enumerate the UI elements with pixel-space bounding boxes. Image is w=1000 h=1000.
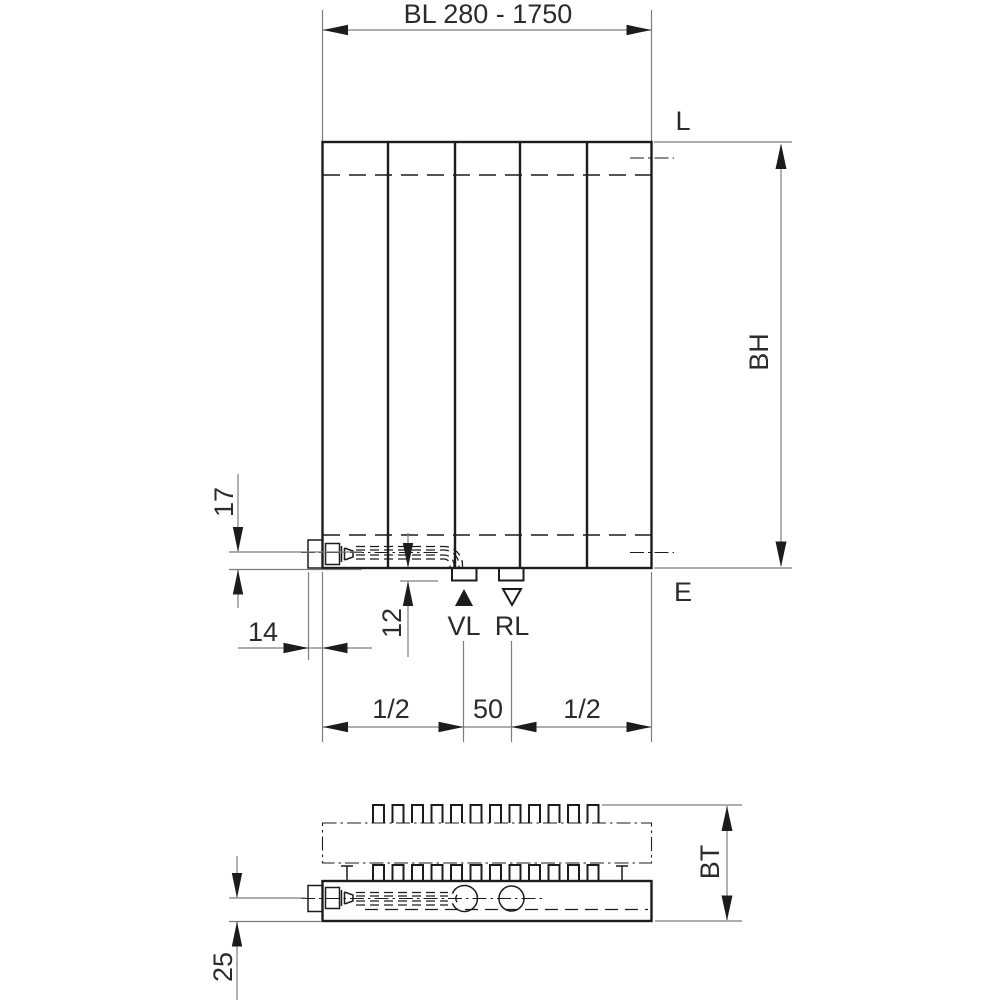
rear-panel-phantom <box>323 823 652 863</box>
fin-tee-mark <box>341 866 353 881</box>
dim-build-height-label: BH <box>744 333 774 371</box>
arrowhead-up <box>233 570 243 595</box>
arrowhead-right <box>627 722 652 732</box>
dim-port-spacing-label: 50 <box>473 694 503 724</box>
valve-body <box>326 544 340 565</box>
dim-left-half-label: 1/2 <box>372 694 410 724</box>
arrowhead-up <box>403 581 413 606</box>
wall-bracket <box>308 540 323 568</box>
radiator-body <box>323 142 675 568</box>
arrowhead-up <box>776 144 787 170</box>
arrowhead-left <box>512 722 537 732</box>
valve-taper <box>345 548 354 560</box>
supply-label: VL <box>447 611 480 641</box>
level-top-label: L <box>675 106 690 136</box>
arrowhead-down <box>232 873 242 898</box>
plan-view: BT 25 <box>208 805 742 1000</box>
arrowhead-down <box>776 542 787 568</box>
valve-assembly-plan <box>301 886 542 912</box>
arrowhead-up <box>232 922 242 947</box>
dim-12-label: 12 <box>377 608 407 638</box>
fin-tee-mark <box>616 866 628 881</box>
return-label: RL <box>495 611 530 641</box>
dim-pipe-depth-25: 25 <box>208 856 322 1000</box>
arrowhead-left <box>323 25 348 35</box>
arrowhead-up <box>722 806 733 831</box>
dim-build-depth-label: BT <box>695 845 725 880</box>
arrowhead-right <box>439 722 464 732</box>
arrowhead-left <box>323 722 348 732</box>
dim-pipe-offset-17: 17 <box>209 474 362 608</box>
dim-bracket-14: 14 <box>238 572 372 742</box>
arrowhead-down <box>233 527 243 552</box>
dim-overall-width-label: BL 280 - 1750 <box>404 0 573 29</box>
arrowhead-down <box>722 896 733 921</box>
arrowhead-right <box>627 25 652 35</box>
dim-17-label: 17 <box>209 487 239 517</box>
level-top: L <box>654 106 792 142</box>
rear-fins <box>373 805 599 823</box>
pipe-hidden-line <box>356 559 450 568</box>
return-flow-marker-icon <box>503 589 521 605</box>
dim-build-height: BH <box>744 144 787 568</box>
dim-25-label: 25 <box>208 952 238 982</box>
supply-flow-marker-icon <box>455 589 473 606</box>
pipe-hidden-line <box>356 555 454 568</box>
valve-assembly-front <box>301 540 463 568</box>
level-bottom-label: E <box>674 577 692 607</box>
level-bottom: E <box>654 568 792 607</box>
dim-stub-12: 12 <box>377 533 438 657</box>
dim-overall-width: BL 280 - 1750 <box>323 0 652 141</box>
dim-14-label: 14 <box>248 617 278 647</box>
radiator-outline <box>323 142 652 568</box>
front-view: BL 280 - 1750 <box>209 0 792 742</box>
dim-right-half-label: 1/2 <box>563 694 601 724</box>
front-fins <box>373 865 599 881</box>
supply-stub <box>452 568 477 581</box>
drawing-canvas: BL 280 - 1750 <box>0 0 1000 1000</box>
arrowhead-right <box>284 643 309 653</box>
arrowhead-left <box>323 643 348 653</box>
radiator-technical-drawing: BL 280 - 1750 <box>0 0 1000 1000</box>
return-stub <box>499 568 524 581</box>
dim-chain-bottom: 1/2 50 1/2 <box>323 572 652 742</box>
